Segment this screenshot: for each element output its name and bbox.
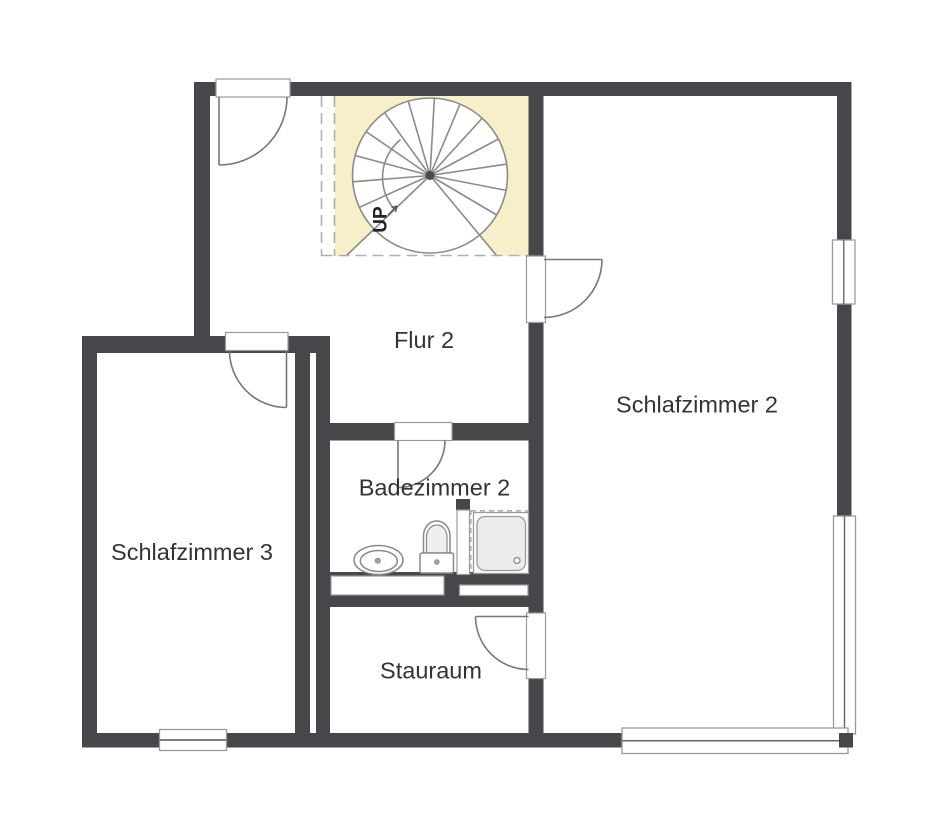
svg-text:Badezimmer 2: Badezimmer 2 bbox=[359, 475, 511, 501]
svg-text:Flur 2: Flur 2 bbox=[394, 327, 454, 353]
svg-text:Stauraum: Stauraum bbox=[380, 658, 482, 684]
svg-text:UP: UP bbox=[371, 206, 392, 233]
svg-text:Schlafzimmer 2: Schlafzimmer 2 bbox=[616, 392, 778, 418]
svg-text:Schlafzimmer 3: Schlafzimmer 3 bbox=[111, 539, 273, 565]
